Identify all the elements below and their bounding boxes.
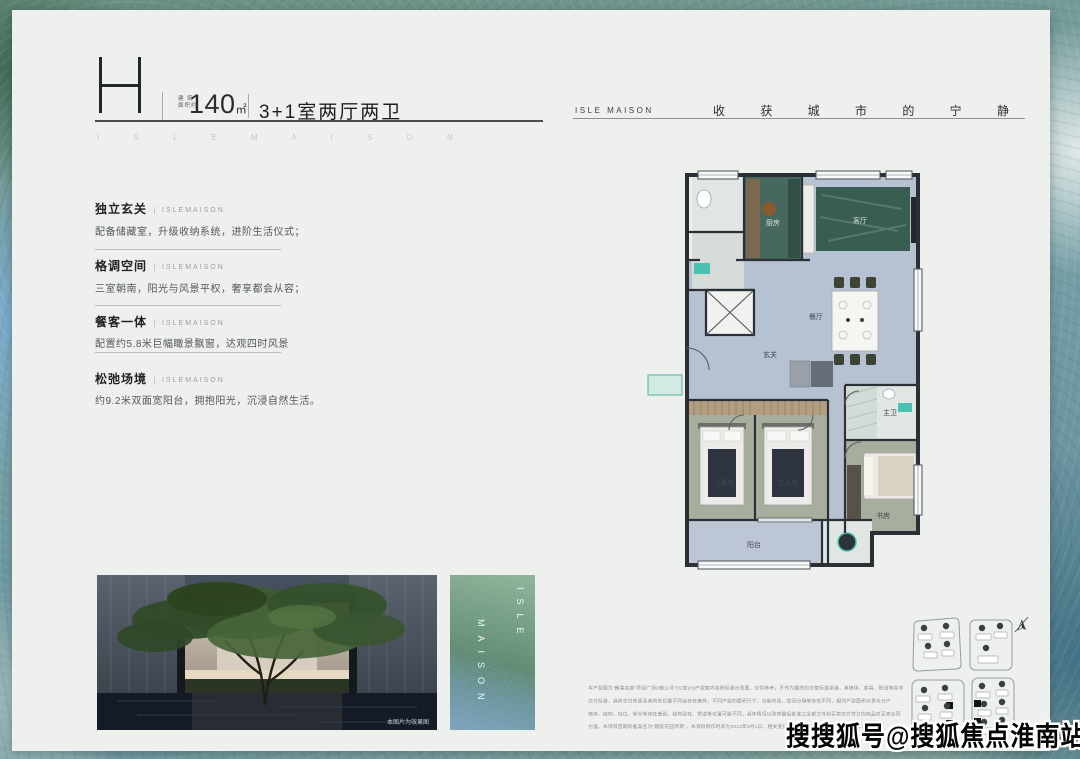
kids-bed [698,423,746,505]
feature-brand: ISLEMAISON [154,264,225,271]
feature-divider [95,305,281,306]
feature-title: 松弛场境 [95,370,147,387]
courtyard-render-photo: 本图片为效果图 [97,575,437,730]
room-label-dining: 餐厅 [809,312,823,321]
room-label-bath: 主卫 [883,408,897,417]
feature-divider [95,352,281,353]
room-label-master: 主人房 [778,478,799,487]
area-value: 140㎡ [189,89,247,120]
bath-sink [898,403,912,412]
room-label-kids: 儿童房 [714,478,735,487]
tagline-rule [573,118,1025,119]
room-label-study: 书房 [876,511,890,520]
feature-brand: ISLEMAISON [154,207,225,214]
wardrobe [847,465,861,525]
floorplan-svg: 厨房 客厅 餐厅 玄关 儿童房 主人房 书房 阳台 主卫 [640,165,935,590]
glass-text-maison: MAISON [476,619,486,709]
feature-block-entry: 独立玄关ISLEMAISON [95,200,295,218]
header-divider [162,92,163,120]
letter-stroke [99,84,141,87]
header-divider [248,94,249,118]
tv-wall [911,197,916,243]
floorplan-figure: 厨房 客厅 餐厅 玄关 儿童房 主人房 书房 阳台 主卫 [640,165,935,590]
feature-brand: ISLEMAISON [154,320,225,327]
ac-unit [648,375,682,395]
balcony-slider [758,518,812,522]
sideboard [790,361,810,387]
feature-block-dining: 餐客一体ISLEMAISON [95,313,295,331]
sideboard [811,361,833,387]
feature-brand: ISLEMAISON [154,377,225,384]
feature-divider [95,249,281,250]
toilet [697,190,711,208]
disclaimer-line: 交付标准，具体交付资源及其所在位置不同会存在差异，不同户型的面积尺寸、功能布局、… [588,695,880,708]
area-unit: ㎡ [236,104,248,116]
feature-block-balcony: 松弛场境ISLEMAISON [95,370,295,388]
feature-desc: 配置约5.8米巨幅瞰景飘窗，达观四时风景 [95,335,325,350]
glass-brand-photo: ISLE MAISON [450,575,535,730]
compass-icon [1015,617,1028,632]
headline-rule [95,120,543,122]
feature-desc: 配备储藏室，升级收纳系统，进阶生活仪式； [95,223,325,238]
disclaimer-line: 本户型图为“朗玺名庭”项目广场2幢11号702室(H)户型室内装修标准示意图，仅… [588,682,880,695]
brand-letters: I S L E M A I S O N [97,133,469,142]
kitchen-sink [762,202,776,216]
sofa [803,185,814,253]
washer [838,533,856,551]
plan-letter-h: H [99,57,141,113]
render-caption: 本图片为效果图 [387,718,429,726]
feature-block-space: 格调空间ISLEMAISON [95,257,295,275]
master-bed [762,423,814,505]
glass-text-isle: ISLE [515,587,525,643]
feature-desc: 约9.2米双面宽阳台，拥抱阳光，沉浸自然生活。 [95,392,325,407]
laundry-unit [694,263,710,274]
feature-title: 餐客一体 [95,313,147,330]
room-label-living: 客厅 [853,216,867,225]
watermark: 搜搜狐号@搜狐焦点淮南站 [786,714,1080,753]
tagline-brand: ISLE MAISON [575,106,654,115]
flyer-card: H 建 筑 面积约 140㎡ 3+1室两厅两卫 I S L E M A I S … [12,10,1050,751]
room-label-entry: 玄关 [763,350,777,359]
room-label-kitchen: 厨房 [766,218,780,227]
feature-title: 格调空间 [95,257,147,274]
study-bed [864,453,916,499]
feature-desc: 三室朝南，阳光与风景平权，奢享都会从容； [95,280,325,295]
feature-title: 独立玄关 [95,200,147,217]
room-label-balcony: 阳台 [747,540,761,549]
tagline-slogan: 收 获 城 市 的 宁 静 [713,102,1025,119]
